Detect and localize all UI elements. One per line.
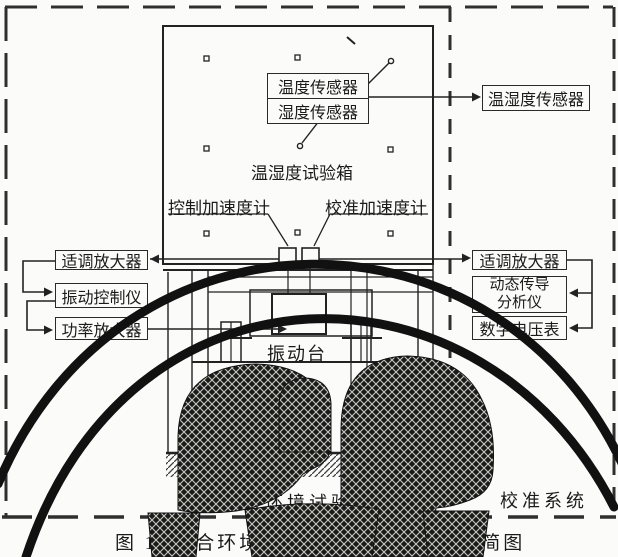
- calibration-system-label: 校准系统: [500, 487, 588, 513]
- figure-canvas: 温度传感器 湿度传感器 温湿度传感器 适调放大器 振动控制仪 功率放大器 适调放…: [0, 0, 618, 557]
- ground-hatch: [166, 453, 471, 477]
- figure-caption: 图 1 综合环境试验系统及其校准系统简图: [115, 528, 525, 555]
- calibration-accelerometer-label: 校准加速度计: [325, 194, 427, 219]
- test-system-label: 综合环境试验系统: [221, 489, 397, 515]
- chamber-label: 温湿度试验箱: [251, 159, 353, 184]
- figure-title: 综合环境试验系统及其校准系统简图: [173, 528, 525, 555]
- conditioning-amplifier-right-box: 适调放大器: [472, 250, 567, 270]
- figure-number: 图 1: [115, 528, 157, 555]
- dynamic-analyzer-line2: 分析仪: [497, 295, 542, 313]
- temperature-sensor-box: 温度传感器: [268, 74, 368, 99]
- digital-voltmeter-box: 数字电压表: [472, 316, 567, 340]
- power-amplifier-box: 功率放大器: [55, 317, 148, 340]
- humidity-sensor-box: 湿度传感器: [268, 99, 368, 123]
- temp-humidity-sensor-box: 温湿度传感器: [482, 85, 590, 111]
- accelerometer-blocks: [279, 248, 319, 264]
- chamber-sensor-boxes: 温度传感器 湿度传感器: [267, 73, 369, 124]
- dynamic-analyzer-box: 动态传导 分析仪: [472, 276, 567, 313]
- vibration-controller-box: 振动控制仪: [55, 283, 148, 308]
- control-accelerometer-label: 控制加速度计: [168, 194, 270, 219]
- dynamic-analyzer-line1: 动态传导: [489, 277, 549, 295]
- shaker-label: 振动台: [267, 340, 327, 366]
- conditioning-amplifier-left-box: 适调放大器: [55, 250, 148, 270]
